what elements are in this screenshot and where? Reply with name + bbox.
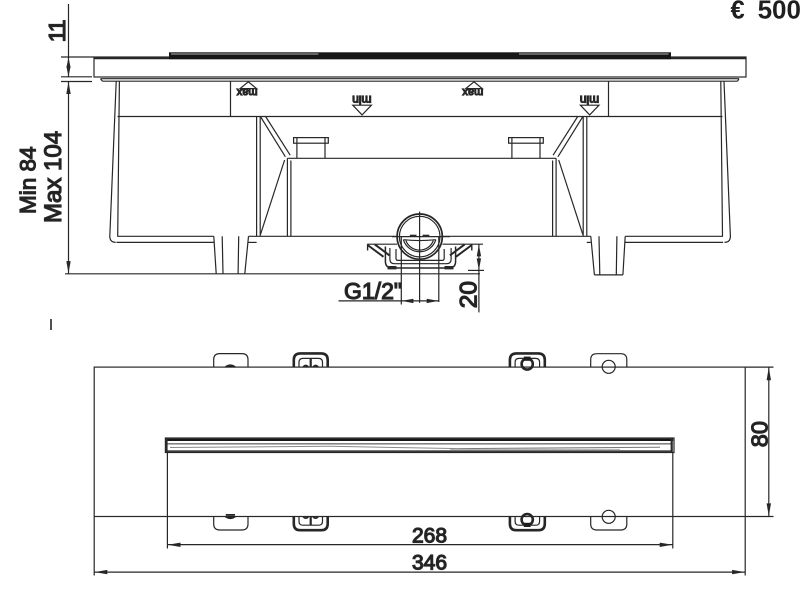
svg-text:268: 268 (412, 524, 447, 547)
svg-text:max: max (462, 86, 483, 98)
svg-text:min: min (580, 93, 599, 107)
svg-text:max: max (236, 86, 257, 98)
svg-text:min: min (352, 93, 371, 107)
svg-text:G1/2": G1/2" (344, 278, 402, 304)
svg-text:80: 80 (746, 421, 772, 447)
svg-text:346: 346 (412, 552, 447, 575)
svg-text:Max 104: Max 104 (40, 131, 67, 223)
svg-text:€: € (731, 0, 745, 25)
svg-text:500: 500 (758, 0, 800, 25)
svg-text:20: 20 (455, 281, 482, 308)
svg-text:11: 11 (44, 20, 70, 42)
svg-text:Min 84: Min 84 (16, 146, 41, 214)
